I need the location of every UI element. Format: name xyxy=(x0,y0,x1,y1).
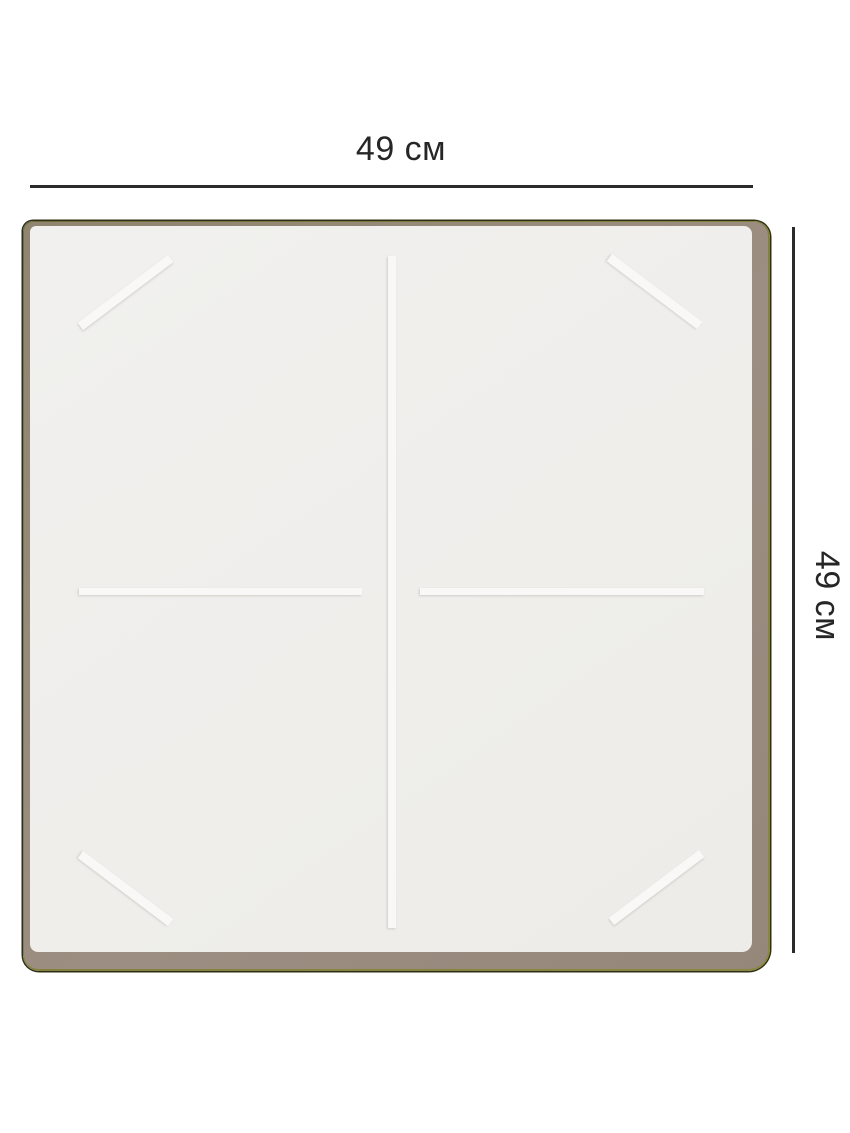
cooktop-panel xyxy=(23,221,770,971)
corner-diagonal-marking-top-right xyxy=(607,254,703,329)
cooktop-frame xyxy=(24,222,768,969)
diagram-canvas: 49 см 49 см xyxy=(0,0,850,1133)
height-dimension-label: 49 см xyxy=(807,526,847,666)
height-dimension-line xyxy=(792,227,795,953)
width-dimension-label: 49 см xyxy=(281,130,521,169)
left-zone-horizontal-marking xyxy=(79,588,362,595)
right-zone-horizontal-marking xyxy=(420,588,704,595)
center-vertical-divider-marking xyxy=(388,256,396,928)
corner-diagonal-marking-bottom-left xyxy=(78,851,174,926)
corner-diagonal-marking-bottom-right xyxy=(609,850,705,925)
cooktop-glass-surface xyxy=(30,226,752,952)
corner-diagonal-marking-top-left xyxy=(78,255,174,330)
width-dimension-line xyxy=(30,185,753,188)
